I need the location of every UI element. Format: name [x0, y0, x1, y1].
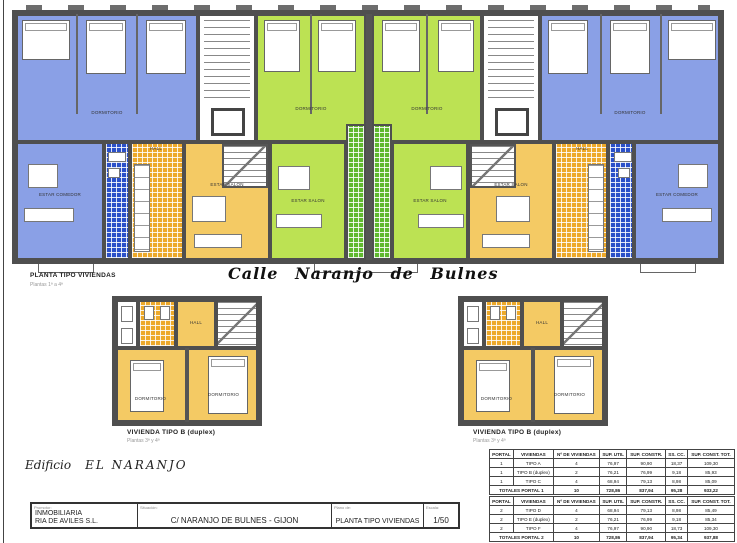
room-label-living: ESTAR SALON	[270, 198, 346, 203]
promoter-line2: RIA DE AVILES S.L.	[35, 518, 134, 526]
table-row: 1TIPO C468,9479,138,9885,09	[490, 477, 735, 486]
bed	[208, 356, 248, 414]
bath-fixture	[467, 328, 479, 344]
table-cell: 2	[553, 515, 599, 524]
dining-table	[496, 196, 530, 222]
table-cell: 90,90	[627, 459, 666, 468]
table-cell: SS. CC.	[666, 450, 688, 459]
stair-treads	[488, 20, 534, 102]
drawing-sheet: DORMITORIO DORMITORIO DORMITORIO DORMITO…	[0, 0, 737, 543]
bath-fixture	[467, 306, 479, 322]
bath-fixture	[121, 306, 133, 322]
table-cell: 837,94	[627, 533, 666, 543]
table-cell: 76,21	[600, 515, 627, 524]
bath-fixture	[506, 306, 516, 320]
building-name-text: EL NARANJO	[85, 458, 188, 472]
room-label-living: ESTAR COMEDOR	[16, 192, 104, 197]
duplex-hall: HALL	[522, 300, 562, 348]
table-cell: TIPO D	[513, 506, 553, 515]
sofa	[482, 234, 530, 248]
bath-fixture	[108, 168, 120, 178]
duplex-closet	[462, 300, 484, 348]
stair-treads	[204, 20, 250, 102]
bed	[382, 20, 420, 72]
table-row: TOTALES PORTAL 210728,86837,9495,34937,8…	[490, 533, 735, 543]
table-cell: 937,88	[687, 533, 734, 543]
table-row: 1TIPO A476,9790,9018,37109,30	[490, 459, 735, 468]
plan-subtitle: Plantas 1ª a 4ª	[30, 282, 63, 288]
bath-green-left	[346, 124, 366, 260]
location-text: C/ NARANJO DE BULNES - GIJON	[141, 516, 328, 525]
room-divider	[136, 14, 138, 114]
duplex-right-title: VIVIENDA TIPO B (duplex)	[473, 429, 561, 436]
table-cell: 4	[553, 506, 599, 515]
duplex-left-subtitle: Plantas 3ª y 4ª	[127, 438, 160, 444]
room-label-hall: HALL	[524, 320, 560, 325]
duplex-right-subtitle: Plantas 3ª y 4ª	[473, 438, 506, 444]
duplex-left-title: VIVIENDA TIPO B (duplex)	[127, 429, 215, 436]
table-cell: SS. CC.	[666, 496, 688, 506]
room-label-living: ESTAR COMEDOR	[634, 192, 720, 197]
bed	[476, 360, 510, 412]
table-cell: 109,30	[687, 524, 734, 533]
table-cell: 933,22	[687, 486, 734, 496]
table-cell: 90,90	[627, 524, 666, 533]
duplex-plan-left: HALL DORMITORIO DORMITORIO	[112, 296, 262, 426]
title-block-drawing: Plano de: PLANTA TIPO VIVIENDAS	[332, 504, 424, 527]
table-cell: 9,18	[666, 515, 688, 524]
table-cell: 9,18	[666, 468, 688, 477]
room-label-hall: HALL	[178, 320, 214, 325]
location-label: Situación:	[140, 505, 158, 510]
room-label-bedroom: DORMITORIO	[256, 106, 366, 111]
duplex-closet	[116, 300, 138, 348]
dining-table	[28, 164, 58, 188]
room-label-living: ESTAR SALON	[392, 198, 468, 203]
dining-table	[192, 196, 226, 222]
table-cell: 18,37	[666, 459, 688, 468]
title-block-scale: Escala: 1/50	[424, 504, 458, 527]
table-row: 2TIPO D468,9479,138,9885,49	[490, 506, 735, 515]
table-cell: 8,98	[666, 477, 688, 486]
table-cell: 728,86	[600, 533, 627, 543]
table-cell: 2	[490, 506, 514, 515]
table-cell: 85,49	[687, 506, 734, 515]
bed	[86, 20, 126, 74]
table-cell: SUP. CONSTR.	[627, 450, 666, 459]
table-row: PORTALVIVIENDASNº DE VIVIENDASSUP. UTILS…	[490, 496, 735, 506]
room-label-living: ESTAR SALON	[468, 182, 554, 187]
table-cell: 109,30	[687, 459, 734, 468]
table-cell: TIPO F	[513, 524, 553, 533]
table-cell: 76,99	[627, 468, 666, 477]
table-cell: TIPO B (duplex)	[513, 468, 553, 477]
table-cell: 76,97	[600, 524, 627, 533]
scale-label: Escala:	[426, 505, 439, 510]
sheet-frame-line	[3, 0, 4, 543]
bed	[22, 20, 70, 60]
duplex-bath	[484, 300, 522, 348]
room-label-bedroom: DORMITORIO	[189, 392, 258, 397]
room-divider	[310, 14, 312, 114]
table-cell: 18,73	[666, 524, 688, 533]
duplex-center-wall	[185, 348, 189, 422]
plan-title: PLANTA TIPO VIVIENDAS	[30, 272, 116, 279]
table-row: TOTALES PORTAL 110728,86837,9495,28933,2…	[490, 486, 735, 496]
kitchen-counter	[588, 164, 604, 252]
duplex-stair	[216, 300, 258, 348]
table-cell: 85,34	[687, 515, 734, 524]
table-cell: 2	[490, 524, 514, 533]
title-block: Promotor: INMOBILIARIA RIA DE AVILES S.L…	[30, 502, 460, 529]
main-floor-plan: DORMITORIO DORMITORIO DORMITORIO DORMITO…	[12, 10, 724, 264]
table-row: PORTALVIVIENDASNº DE VIVIENDASSUP. UTILS…	[490, 450, 735, 459]
bath-green-right	[372, 124, 392, 260]
dining-table	[430, 166, 462, 190]
bed	[438, 20, 474, 72]
room-label-hall: HALL	[126, 146, 186, 151]
table-cell: 4	[553, 477, 599, 486]
drawing-label: Plano de:	[334, 505, 351, 510]
sofa	[418, 214, 464, 228]
dining-table	[278, 166, 310, 190]
bed	[610, 20, 650, 74]
table-cell: 728,86	[600, 486, 627, 496]
room-divider	[660, 14, 662, 114]
table-cell: 68,94	[600, 506, 627, 515]
table-cell: 68,94	[600, 477, 627, 486]
table-cell: 4	[553, 524, 599, 533]
table-cell: 2	[553, 468, 599, 477]
table-cell: 1	[490, 468, 514, 477]
stairwell-right	[482, 14, 540, 142]
table-cell: 95,28	[666, 486, 688, 496]
dining-table	[678, 164, 708, 188]
duplex-stair	[562, 300, 604, 348]
plan-outer-wall: DORMITORIO DORMITORIO DORMITORIO DORMITO…	[12, 10, 724, 264]
table-cell: VIVIENDAS	[513, 496, 553, 506]
table-cell: TIPO A	[513, 459, 553, 468]
duplex-hall: HALL	[176, 300, 216, 348]
table-cell: 76,97	[600, 459, 627, 468]
room-label-hall: HALL	[552, 146, 612, 151]
table-cell: 76,99	[627, 515, 666, 524]
bed	[548, 20, 588, 74]
room-divider	[600, 14, 602, 114]
table-cell: SUP. CONST. TOT.	[687, 450, 734, 459]
table-cell: SUP. UTIL	[600, 496, 627, 506]
table-cell: 2	[490, 515, 514, 524]
scale-text: 1/50	[427, 516, 455, 525]
table-cell: 79,13	[627, 477, 666, 486]
table-cell: TIPO C	[513, 477, 553, 486]
living-blue-left	[16, 142, 104, 260]
bed	[554, 356, 594, 414]
table-cell: 8,98	[666, 506, 688, 515]
table-cell: 10	[553, 486, 599, 496]
table-cell: 837,94	[627, 486, 666, 496]
sofa	[24, 208, 74, 222]
room-label-bedroom: DORMITORIO	[372, 106, 482, 111]
table-cell: VIVIENDAS	[513, 450, 553, 459]
title-block-promoter: Promotor: INMOBILIARIA RIA DE AVILES S.L…	[32, 504, 138, 527]
living-blue-right	[634, 142, 720, 260]
bath-fixture	[121, 328, 133, 344]
bed	[130, 360, 164, 412]
bath-fixture	[614, 152, 632, 162]
stairwell-left	[198, 14, 256, 142]
sofa	[662, 208, 712, 222]
bath-fixture	[144, 306, 154, 320]
table-cell: Nº DE VIVIENDAS	[553, 496, 599, 506]
room-label-bedroom: DORMITORIO	[116, 396, 185, 401]
room-label-bedroom: DORMITORIO	[540, 110, 720, 115]
bath-fixture	[160, 306, 170, 320]
bath-fixture	[108, 152, 126, 162]
table-cell: SUP. UTIL	[600, 450, 627, 459]
bed	[146, 20, 186, 74]
table-cell: 79,13	[627, 506, 666, 515]
title-block-location: Situación: C/ NARANJO DE BULNES - GIJON	[138, 504, 332, 527]
table-cell: 10	[553, 533, 599, 543]
bath-fixture	[618, 168, 630, 178]
room-label-bedroom: DORMITORIO	[462, 396, 531, 401]
table-cell: SUP. CONST. TOT.	[687, 496, 734, 506]
street-title: Calle Naranjo de Bulnes	[228, 264, 498, 283]
table-cell: 85,93	[687, 468, 734, 477]
table-cell: 1	[490, 477, 514, 486]
promoter-line1: INMOBILIARIA	[35, 510, 134, 518]
building-name-prefix: Edificio	[25, 458, 71, 472]
building-name: EdificioEL NARANJO	[25, 458, 188, 472]
table-cell: PORTAL	[490, 450, 514, 459]
bed	[668, 20, 716, 60]
kitchen-counter	[134, 164, 150, 252]
table-cell: TIPO E (duplex)	[513, 515, 553, 524]
sofa	[276, 214, 322, 228]
table-cell: Nº DE VIVIENDAS	[553, 450, 599, 459]
table-cell: 95,34	[666, 533, 688, 543]
room-label-bedroom: DORMITORIO	[535, 392, 604, 397]
areas-table: PORTALVIVIENDASNº DE VIVIENDASSUP. UTILS…	[489, 449, 735, 543]
table-cell: 4	[553, 459, 599, 468]
duplex-center-wall	[531, 348, 535, 422]
table-cell: SUP. CONSTR.	[627, 496, 666, 506]
table-cell: TOTALES PORTAL 2	[490, 533, 554, 543]
table-cell: 76,21	[600, 468, 627, 477]
bath-fixture	[490, 306, 500, 320]
sofa	[194, 234, 242, 248]
promoter-label: Promotor:	[34, 505, 52, 510]
drawing-text: PLANTA TIPO VIVIENDAS	[335, 518, 420, 525]
table-cell: 85,09	[687, 477, 734, 486]
table-row: 2TIPO F476,9790,9018,73109,30	[490, 524, 735, 533]
table-cell: PORTAL	[490, 496, 514, 506]
bed	[318, 20, 356, 72]
bed	[264, 20, 300, 72]
duplex-plan-right: HALL DORMITORIO DORMITORIO	[458, 296, 608, 426]
room-label-living: ESTAR SALON	[184, 182, 270, 187]
room-label-bedroom: DORMITORIO	[16, 110, 198, 115]
areas-table-body: PORTALVIVIENDASNº DE VIVIENDASSUP. UTILS…	[490, 450, 735, 543]
table-cell: TOTALES PORTAL 1	[490, 486, 554, 496]
duplex-bath	[138, 300, 176, 348]
terrace	[640, 264, 696, 273]
elevator-left	[211, 108, 245, 136]
table-cell: 1	[490, 459, 514, 468]
room-divider	[426, 14, 428, 114]
elevator-right	[495, 108, 529, 136]
table-row: 1TIPO B (duplex)276,2176,999,1885,93	[490, 468, 735, 477]
room-divider	[76, 14, 78, 114]
table-row: 2TIPO E (duplex)276,2176,999,1885,34	[490, 515, 735, 524]
